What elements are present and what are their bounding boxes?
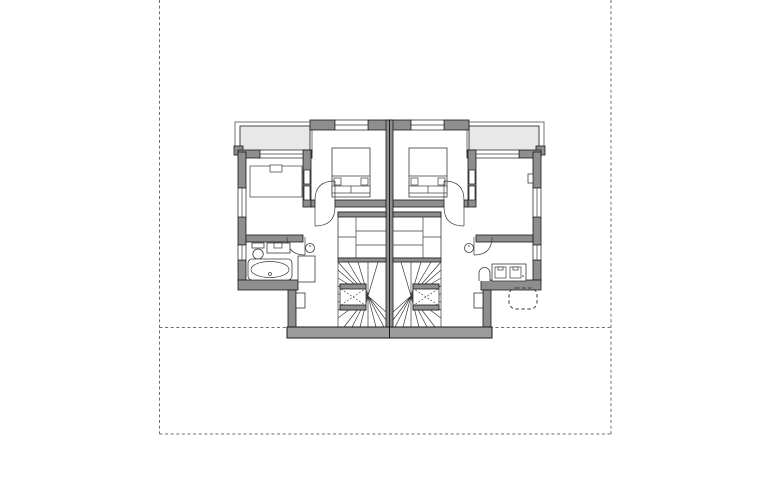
floor-plan-drawing: floor-plan <box>0 0 780 488</box>
bathtub-icon <box>248 259 292 280</box>
dressing-room-furniture <box>250 165 302 197</box>
double-vanity-icon <box>492 264 526 281</box>
unit-right-shell <box>390 120 546 338</box>
skylight-dashed-outline <box>509 288 537 309</box>
floor-plan-sheet: floor-plan <box>0 0 780 488</box>
bathroom-closet <box>298 256 315 282</box>
washbasin-icon <box>267 243 290 253</box>
unit-left-shell <box>234 120 390 338</box>
toilet-icon <box>479 268 490 282</box>
toilet-icon <box>252 243 264 259</box>
door-jamb-detail <box>528 174 533 183</box>
